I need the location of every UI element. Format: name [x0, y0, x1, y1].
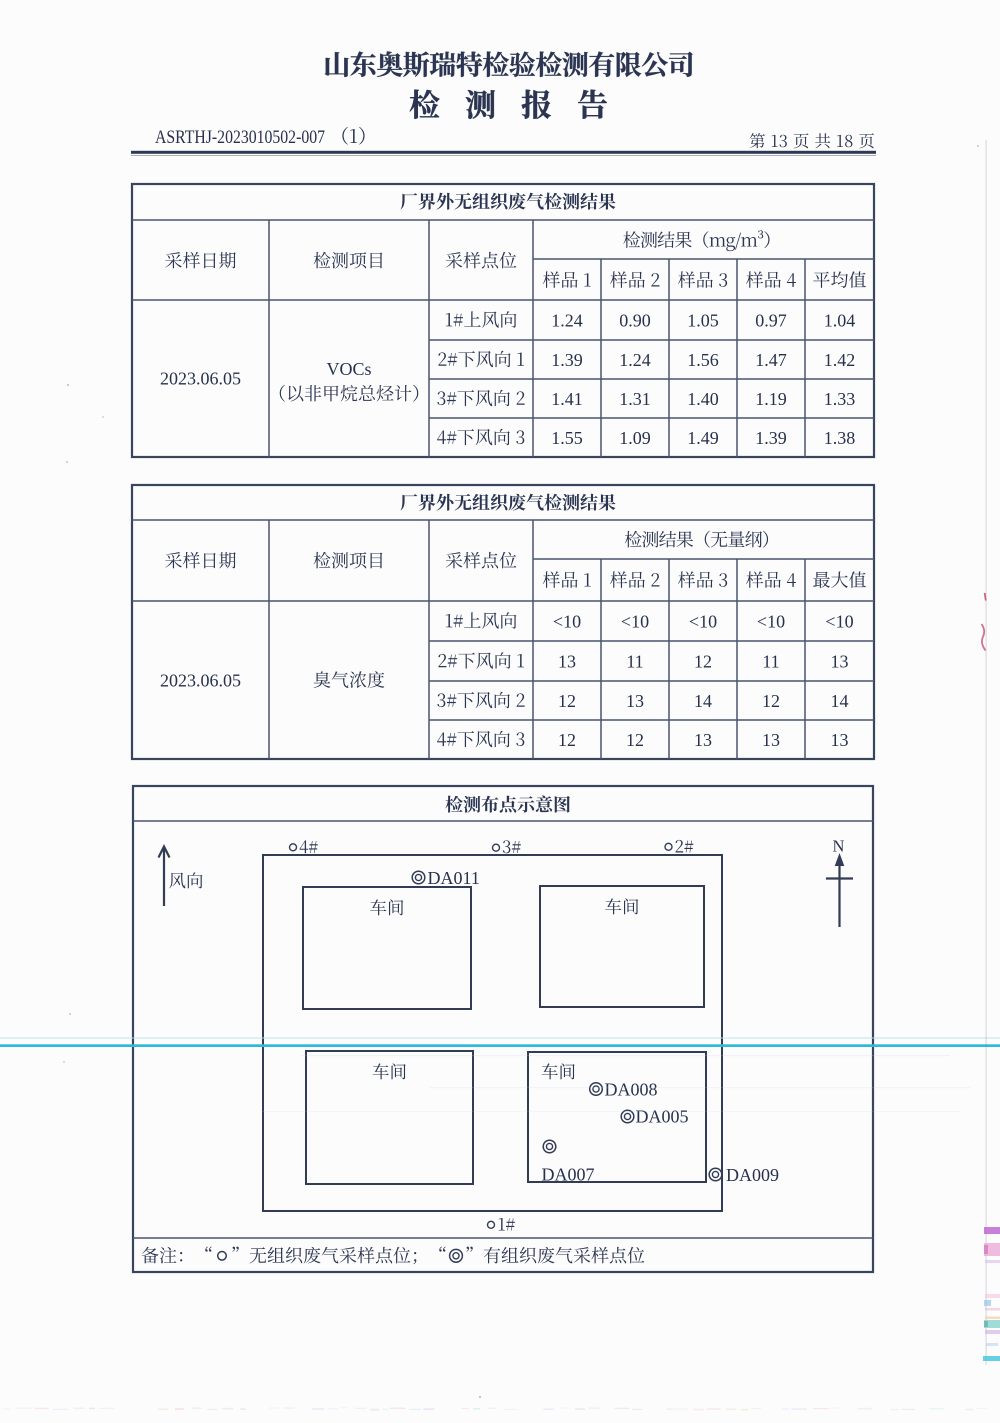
svg-text:1.39: 1.39 — [755, 428, 787, 448]
svg-text:1.33: 1.33 — [824, 389, 856, 409]
svg-text:1.38: 1.38 — [824, 428, 856, 448]
svg-text:1.19: 1.19 — [755, 389, 787, 409]
svg-text:<10: <10 — [689, 611, 717, 631]
svg-text:1.39: 1.39 — [551, 350, 583, 370]
svg-text:14: 14 — [831, 691, 849, 711]
svg-text:DA005: DA005 — [636, 1107, 689, 1127]
svg-text:12: 12 — [762, 691, 780, 711]
svg-text:<10: <10 — [621, 611, 649, 631]
svg-text:11: 11 — [762, 651, 779, 671]
svg-text:1.49: 1.49 — [687, 428, 719, 448]
svg-text:DA011: DA011 — [428, 868, 480, 888]
svg-text:1.56: 1.56 — [687, 350, 719, 370]
svg-text:1.42: 1.42 — [824, 350, 856, 370]
svg-text:13: 13 — [831, 651, 849, 671]
svg-text:2023.06.05: 2023.06.05 — [160, 671, 241, 691]
svg-text:VOCs: VOCs — [326, 359, 371, 379]
svg-text:1.40: 1.40 — [687, 389, 719, 409]
svg-text:<10: <10 — [553, 611, 581, 631]
svg-text:1.24: 1.24 — [551, 310, 583, 330]
svg-text:11: 11 — [626, 651, 643, 671]
svg-text:ASRTHJ-2023010502-007: ASRTHJ-2023010502-007 — [155, 127, 325, 148]
svg-text:1.55: 1.55 — [551, 428, 583, 448]
svg-text:2023.06.05: 2023.06.05 — [160, 369, 241, 389]
svg-text:13: 13 — [558, 651, 576, 671]
svg-text:13: 13 — [626, 691, 644, 711]
svg-text:<10: <10 — [825, 611, 853, 631]
svg-text:12: 12 — [626, 730, 644, 750]
svg-text:DA009: DA009 — [726, 1165, 779, 1185]
svg-text:13: 13 — [694, 730, 712, 750]
svg-text:0.90: 0.90 — [619, 310, 651, 330]
svg-text:1.05: 1.05 — [687, 310, 719, 330]
svg-text:12: 12 — [694, 651, 712, 671]
svg-text:DA008: DA008 — [605, 1080, 658, 1100]
svg-text:1.24: 1.24 — [619, 350, 651, 370]
svg-text:<10: <10 — [757, 611, 785, 631]
svg-text:12: 12 — [558, 691, 576, 711]
svg-text:1.47: 1.47 — [755, 350, 787, 370]
svg-text:1.09: 1.09 — [619, 428, 651, 448]
svg-text:13: 13 — [831, 730, 849, 750]
svg-text:1.41: 1.41 — [551, 389, 583, 409]
svg-text:14: 14 — [694, 691, 712, 711]
svg-text:13: 13 — [762, 730, 780, 750]
svg-text:1.04: 1.04 — [824, 310, 856, 330]
svg-text:0.97: 0.97 — [755, 310, 787, 330]
svg-text:1.31: 1.31 — [619, 389, 651, 409]
svg-text:N: N — [833, 837, 845, 856]
svg-text:12: 12 — [558, 730, 576, 750]
svg-text:DA007: DA007 — [542, 1165, 595, 1185]
